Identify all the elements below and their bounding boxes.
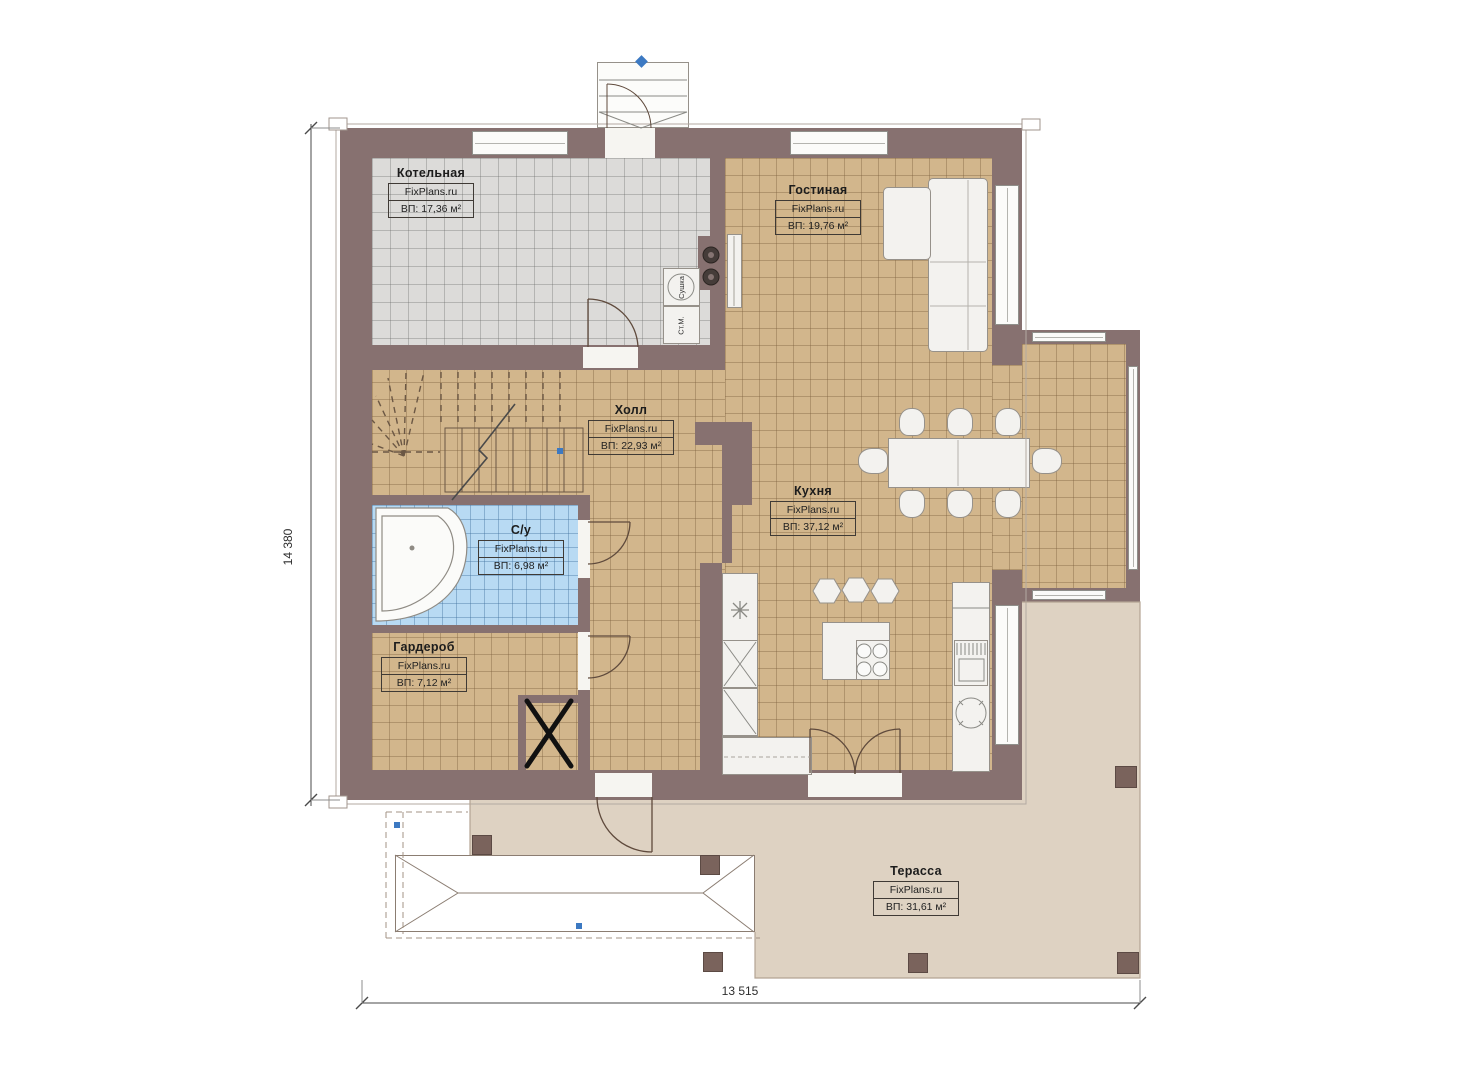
room-info-box: FixPlans.ru ВП: 7,12 м² bbox=[381, 657, 467, 692]
room-label-living: Гостиная FixPlans.ru ВП: 19,76 м² bbox=[775, 183, 861, 235]
room-label-bathroom: С/у FixPlans.ru ВП: 6,98 м² bbox=[478, 523, 564, 575]
room-brand: FixPlans.ru bbox=[382, 658, 466, 675]
room-label-wardrobe: Гардероб FixPlans.ru ВП: 7,12 м² bbox=[381, 640, 467, 692]
dimension-width-label: 13 515 bbox=[700, 984, 780, 998]
room-info-box: FixPlans.ru ВП: 17,36 м² bbox=[388, 183, 474, 218]
exterior-outline bbox=[329, 118, 1040, 808]
chimney-flues bbox=[703, 247, 719, 285]
room-area: ВП: 22,93 м² bbox=[589, 438, 673, 454]
room-info-box: FixPlans.ru ВП: 19,76 м² bbox=[775, 200, 861, 235]
staircase bbox=[372, 372, 583, 500]
plan-linework bbox=[0, 0, 1474, 1080]
room-name: Котельная bbox=[388, 166, 474, 180]
room-label-hall: Холл FixPlans.ru ВП: 22,93 м² bbox=[588, 403, 674, 455]
room-area: ВП: 37,12 м² bbox=[771, 519, 855, 535]
dimension-height-label: 14 380 bbox=[281, 507, 295, 587]
room-name: Терасса bbox=[873, 864, 959, 878]
room-info-box: FixPlans.ru ВП: 37,12 м² bbox=[770, 501, 856, 536]
room-area: ВП: 17,36 м² bbox=[389, 201, 473, 217]
room-name: Кухня bbox=[770, 484, 856, 498]
room-info-box: FixPlans.ru ВП: 6,98 м² bbox=[478, 540, 564, 575]
room-info-box: FixPlans.ru ВП: 31,61 м² bbox=[873, 881, 959, 916]
kitchen-details bbox=[724, 180, 990, 757]
entrance-porch-lines bbox=[599, 55, 687, 128]
room-area: ВП: 31,61 м² bbox=[874, 899, 958, 915]
room-area: ВП: 7,12 м² bbox=[382, 675, 466, 691]
porch-roof-lines bbox=[386, 812, 760, 938]
stair-upper-flight bbox=[372, 372, 560, 456]
dryer-drum bbox=[668, 274, 694, 300]
room-name: Гостиная bbox=[775, 183, 861, 197]
shaft-cross bbox=[527, 701, 571, 766]
bathtub bbox=[376, 508, 467, 621]
room-label-terrace: Терасса FixPlans.ru ВП: 31,61 м² bbox=[873, 864, 959, 916]
room-label-boiler: Котельная FixPlans.ru ВП: 17,36 м² bbox=[388, 166, 474, 218]
room-brand: FixPlans.ru bbox=[389, 184, 473, 201]
room-brand: FixPlans.ru bbox=[589, 421, 673, 438]
terrace-edges bbox=[470, 602, 1140, 978]
room-info-box: FixPlans.ru ВП: 22,93 м² bbox=[588, 420, 674, 455]
room-area: ВП: 6,98 м² bbox=[479, 558, 563, 574]
room-brand: FixPlans.ru bbox=[771, 502, 855, 519]
door-swings bbox=[588, 299, 900, 852]
room-brand: FixPlans.ru bbox=[479, 541, 563, 558]
room-name: С/у bbox=[478, 523, 564, 537]
handle-dots bbox=[394, 822, 582, 929]
room-label-kitchen: Кухня FixPlans.ru ВП: 37,12 м² bbox=[770, 484, 856, 536]
room-brand: FixPlans.ru bbox=[874, 882, 958, 899]
bar-stools bbox=[813, 578, 899, 603]
room-brand: FixPlans.ru bbox=[776, 201, 860, 218]
floor-plan-canvas: Сушка Ст.М. bbox=[0, 0, 1474, 1080]
room-name: Гардероб bbox=[381, 640, 467, 654]
room-name: Холл bbox=[588, 403, 674, 417]
room-area: ВП: 19,76 м² bbox=[776, 218, 860, 234]
